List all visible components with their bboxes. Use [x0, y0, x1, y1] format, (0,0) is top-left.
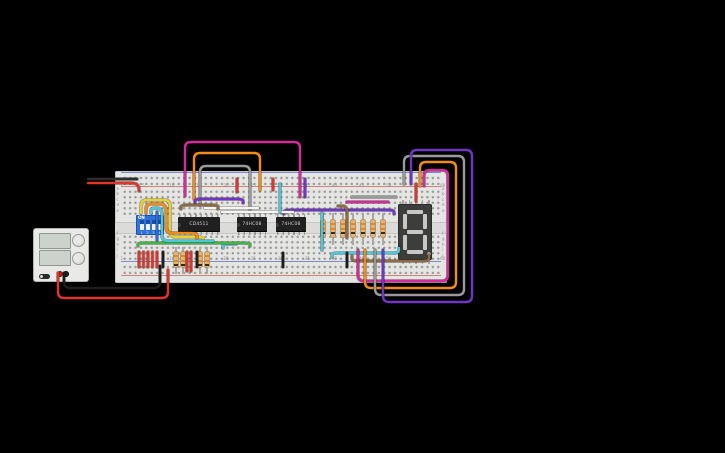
- wire-10[interactable]: [195, 199, 243, 203]
- wire-11[interactable]: [284, 210, 394, 214]
- wire-outline-0: [64, 266, 160, 288]
- wire-40[interactable]: [358, 170, 448, 281]
- wire-outline-40: [358, 170, 448, 281]
- wire-outline-1: [58, 270, 168, 298]
- wires-layer: [0, 0, 725, 453]
- wire-1[interactable]: [58, 270, 168, 298]
- wire-0[interactable]: [64, 266, 160, 288]
- circuit-canvas[interactable]: 1155101015152020252530303535404045455050…: [0, 0, 725, 453]
- wire-3[interactable]: [88, 183, 139, 191]
